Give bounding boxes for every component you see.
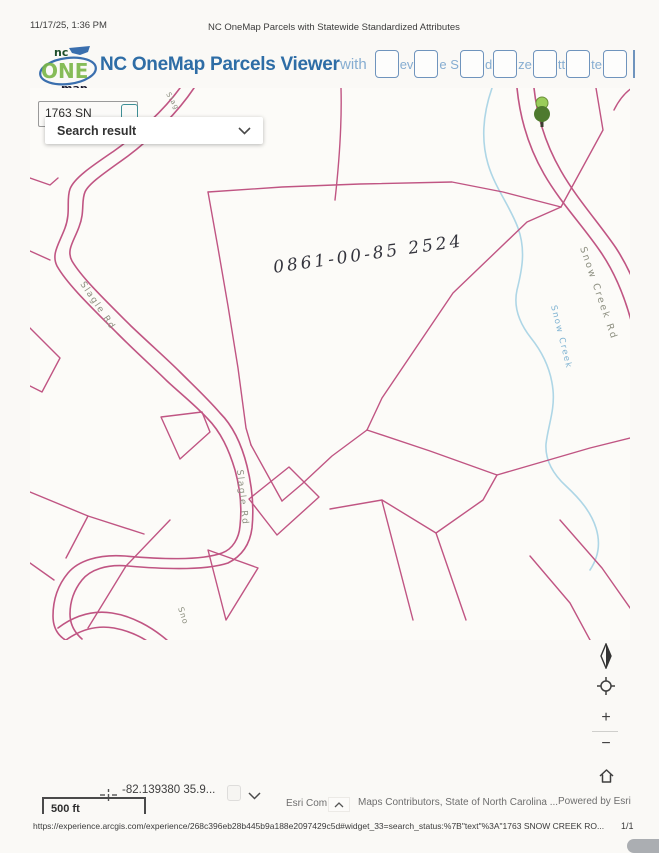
search-result-dropdown[interactable]: Search result (45, 117, 263, 144)
print-page-title: NC OneMap Parcels with Statewide Standar… (208, 22, 460, 33)
map-background (30, 88, 630, 640)
scan-artifact (627, 839, 659, 853)
contributors-text: Maps Contributors, State of North Caroli… (358, 797, 558, 808)
app-title: NC OneMap Parcels Viewer (100, 54, 340, 76)
compass-button[interactable] (593, 643, 619, 674)
coordinates-display: -82.139380 35.9... (122, 784, 215, 796)
logo-nc-text: nc (54, 46, 68, 59)
esri-attribution-link[interactable]: Esri Com (286, 798, 327, 809)
app-subtitle: with ev e S d ze tt te (340, 50, 635, 78)
subtitle-end-bar (633, 50, 636, 78)
map-canvas[interactable]: Slagle Rd Slagle Rd Snow Creek Rd Snow C… (30, 88, 630, 640)
subtitle-overlay-box (460, 50, 484, 78)
search-result-label: Search result (57, 124, 238, 138)
powered-by-esri: Powered by Esri (558, 796, 631, 807)
home-icon (598, 768, 615, 784)
page-number: 1/1 (621, 821, 634, 831)
attribution-expand-button[interactable] (328, 797, 350, 812)
locate-button[interactable] (593, 677, 619, 700)
chevron-down-icon (238, 127, 251, 135)
scale-label: 500 ft (44, 803, 80, 815)
faded-square-icon[interactable] (227, 785, 241, 801)
subtitle-overlay-box (566, 50, 590, 78)
subtitle-overlay-box (603, 50, 627, 78)
subtitle-overlay-box (414, 50, 438, 78)
subtitle-with: with (340, 56, 367, 73)
subtitle-overlay-box (375, 50, 399, 78)
chevron-down-icon (248, 792, 261, 800)
zoom-divider (592, 731, 618, 732)
footer-url: https://experience.arcgis.com/experience… (33, 821, 604, 831)
chevron-up-icon (334, 802, 344, 808)
compass-needle-icon (599, 643, 613, 669)
coordinates-expand-button[interactable] (248, 787, 261, 805)
logo-one-text: ONE (41, 59, 88, 83)
home-button[interactable] (593, 768, 619, 789)
subtitle-overlay-box (493, 50, 517, 78)
nc-state-shape (69, 46, 90, 55)
zoom-in-button[interactable]: + (593, 711, 619, 725)
scale-bar: 500 ft (42, 797, 146, 814)
zoom-out-button[interactable]: − (593, 737, 619, 751)
subtitle-overlay-box (533, 50, 557, 78)
print-datetime: 11/17/25, 1:36 PM (30, 20, 107, 31)
locate-icon (597, 677, 615, 695)
